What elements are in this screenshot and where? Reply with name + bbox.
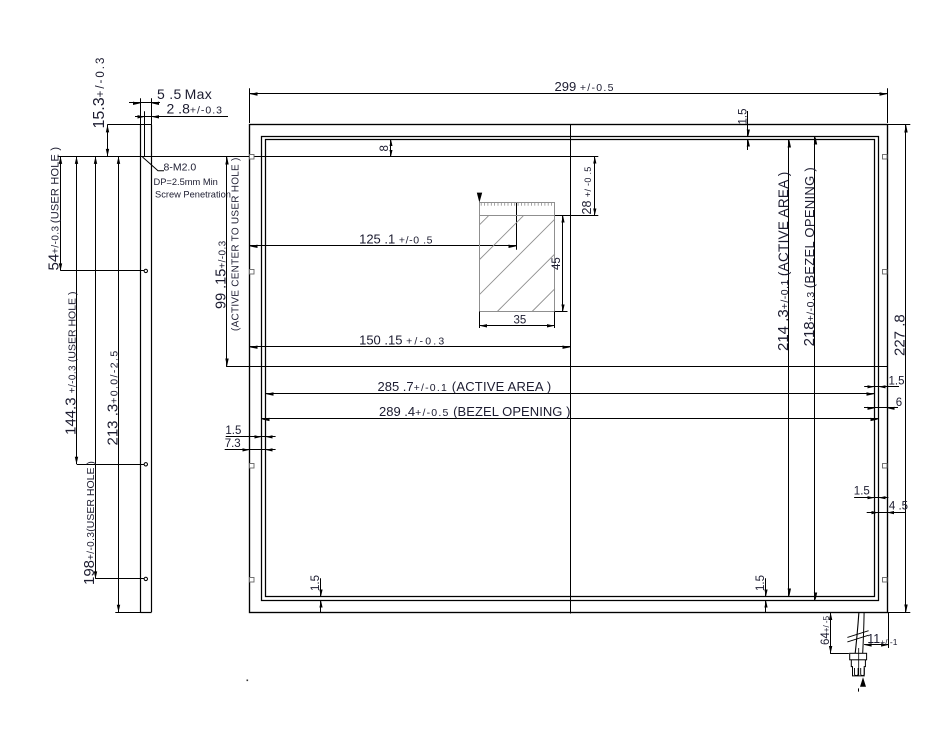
svg-text:227 .8: 227 .8 <box>892 314 909 356</box>
svg-text:214 .3+/-0.1 (ACTIVE AREA ): 214 .3+/-0.1 (ACTIVE AREA ) <box>775 171 792 351</box>
svg-text:7.3: 7.3 <box>225 438 241 450</box>
svg-text:1.5: 1.5 <box>738 109 750 125</box>
svg-text:45: 45 <box>551 257 563 270</box>
svg-text:35: 35 <box>514 315 527 327</box>
svg-text:299 +/-0.5: 299 +/-0.5 <box>555 79 615 94</box>
svg-text:8-M2.0: 8-M2.0 <box>164 162 197 174</box>
svg-text:1.5: 1.5 <box>310 575 322 591</box>
svg-text:150 .15 +/-0.3: 150 .15 +/-0.3 <box>359 332 446 347</box>
svg-text:125 .1 +/-0 .5: 125 .1 +/-0 .5 <box>359 231 433 246</box>
svg-text:Screw Penetration: Screw Penetration <box>155 190 231 200</box>
svg-text:1.5: 1.5 <box>889 375 905 387</box>
svg-text:(ACTIVE CENTER TO USER HOLE ): (ACTIVE CENTER TO USER HOLE ) <box>231 157 242 331</box>
svg-text:289 .4+/-0.5 (BEZEL OPENING ): 289 .4+/-0.5 (BEZEL OPENING ) <box>379 404 571 419</box>
svg-text:8: 8 <box>379 145 391 151</box>
svg-text:1.5: 1.5 <box>854 486 870 498</box>
svg-text:1.5: 1.5 <box>755 575 767 591</box>
svg-text:64+/ -5: 64+/ -5 <box>820 615 832 645</box>
svg-text:285 .7+/-0.1 (ACTIVE AREA ): 285 .7+/-0.1 (ACTIVE AREA ) <box>378 379 552 394</box>
svg-text:4 .5: 4 .5 <box>889 501 908 513</box>
svg-text:28 +/ -0 .5: 28 +/ -0 .5 <box>580 166 594 214</box>
svg-text:1.5: 1.5 <box>225 425 241 437</box>
svg-text:DP=2.5mm Min: DP=2.5mm Min <box>154 177 218 187</box>
svg-text:6: 6 <box>896 397 902 409</box>
